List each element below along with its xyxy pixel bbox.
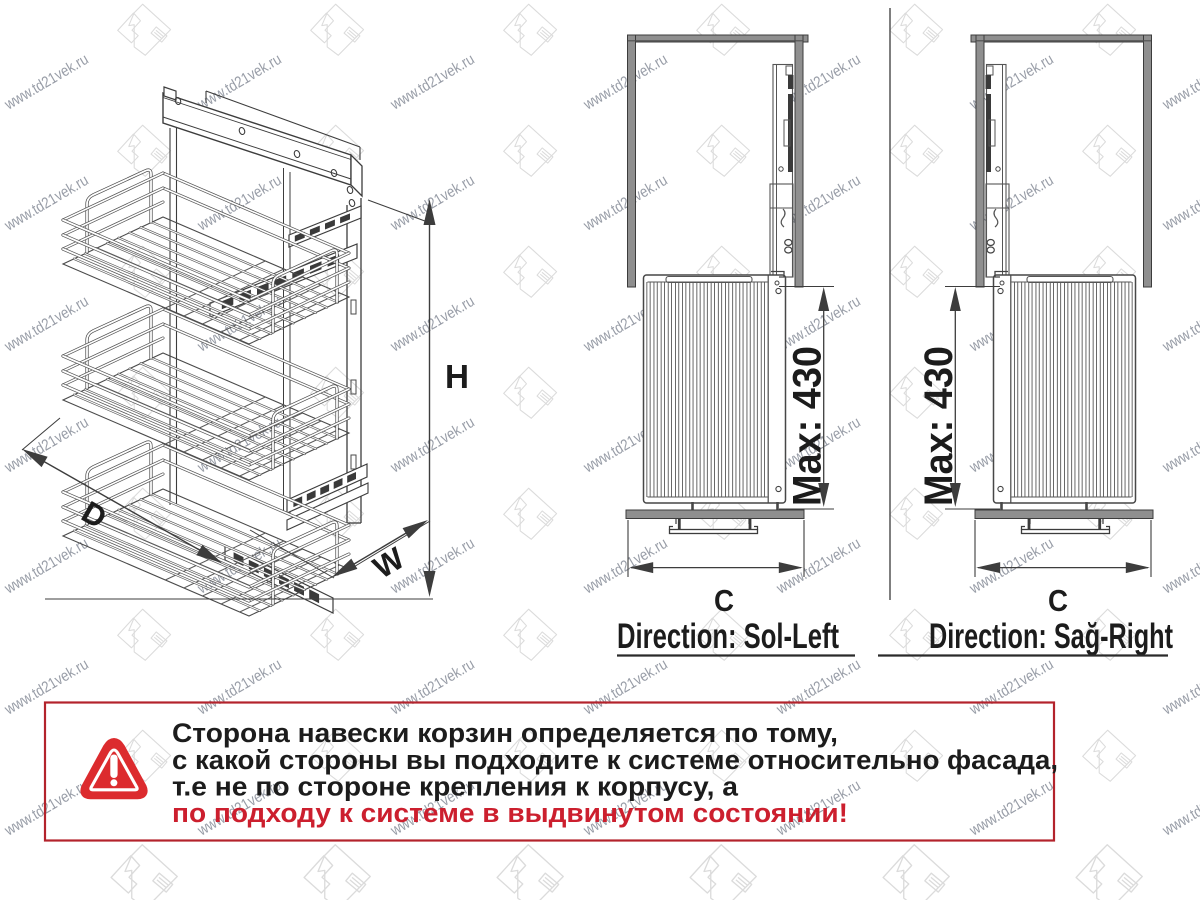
svg-text:www.td21vek.ru: www.td21vek.ru xyxy=(1,414,91,477)
svg-text:www.td21vek.ru: www.td21vek.ru xyxy=(966,656,1056,719)
svg-text:H: H xyxy=(445,358,469,395)
svg-text:www.td21vek.ru: www.td21vek.ru xyxy=(1,777,91,840)
svg-text:www.td21vek.ru: www.td21vek.ru xyxy=(580,656,670,719)
svg-text:www.td21vek.ru: www.td21vek.ru xyxy=(580,535,670,598)
svg-text:Сторона навески корзин определ: Сторона навески корзин определяется по т… xyxy=(172,718,838,748)
svg-text:www.td21vek.ru: www.td21vek.ru xyxy=(1159,414,1200,477)
svg-text:www.td21vek.ru: www.td21vek.ru xyxy=(1159,535,1200,598)
svg-text:www.td21vek.ru: www.td21vek.ru xyxy=(194,51,284,114)
svg-text:Direction: Sol-Left: Direction: Sol-Left xyxy=(617,617,839,656)
svg-text:www.td21vek.ru: www.td21vek.ru xyxy=(1,656,91,719)
svg-text:www.td21vek.ru: www.td21vek.ru xyxy=(1159,51,1200,114)
svg-text:Max: 430: Max: 430 xyxy=(917,346,961,506)
svg-text:www.td21vek.ru: www.td21vek.ru xyxy=(966,777,1056,840)
svg-text:www.td21vek.ru: www.td21vek.ru xyxy=(966,535,1056,598)
svg-text:C: C xyxy=(1048,583,1068,618)
svg-text:т.е не по стороне крепления к: т.е не по стороне крепления к корпусу, а xyxy=(172,772,739,802)
svg-text:C: C xyxy=(714,583,734,618)
svg-text:по подходу к системе в выдвину: по подходу к системе в выдвинутом состоя… xyxy=(172,798,848,828)
svg-text:www.td21vek.ru: www.td21vek.ru xyxy=(773,656,863,719)
svg-text:www.td21vek.ru: www.td21vek.ru xyxy=(580,172,670,235)
svg-text:www.td21vek.ru: www.td21vek.ru xyxy=(387,51,477,114)
svg-text:www.td21vek.ru: www.td21vek.ru xyxy=(387,656,477,719)
svg-text:www.td21vek.ru: www.td21vek.ru xyxy=(1159,293,1200,356)
svg-text:www.td21vek.ru: www.td21vek.ru xyxy=(387,293,477,356)
svg-text:Direction: Sağ-Right: Direction: Sağ-Right xyxy=(929,617,1173,656)
svg-text:www.td21vek.ru: www.td21vek.ru xyxy=(1159,656,1200,719)
svg-text:www.td21vek.ru: www.td21vek.ru xyxy=(1,51,91,114)
svg-text:Max: 430: Max: 430 xyxy=(786,346,830,506)
svg-text:www.td21vek.ru: www.td21vek.ru xyxy=(194,172,284,235)
svg-text:www.td21vek.ru: www.td21vek.ru xyxy=(194,656,284,719)
svg-text:www.td21vek.ru: www.td21vek.ru xyxy=(387,414,477,477)
svg-text:www.td21vek.ru: www.td21vek.ru xyxy=(1159,777,1200,840)
svg-text:www.td21vek.ru: www.td21vek.ru xyxy=(1159,172,1200,235)
svg-text:www.td21vek.ru: www.td21vek.ru xyxy=(387,172,477,235)
svg-text:с какой стороны вы подходите к: с какой стороны вы подходите к системе о… xyxy=(172,745,1058,775)
svg-text:www.td21vek.ru: www.td21vek.ru xyxy=(1,293,91,356)
svg-text:www.td21vek.ru: www.td21vek.ru xyxy=(580,51,670,114)
svg-text:www.td21vek.ru: www.td21vek.ru xyxy=(1,535,91,598)
